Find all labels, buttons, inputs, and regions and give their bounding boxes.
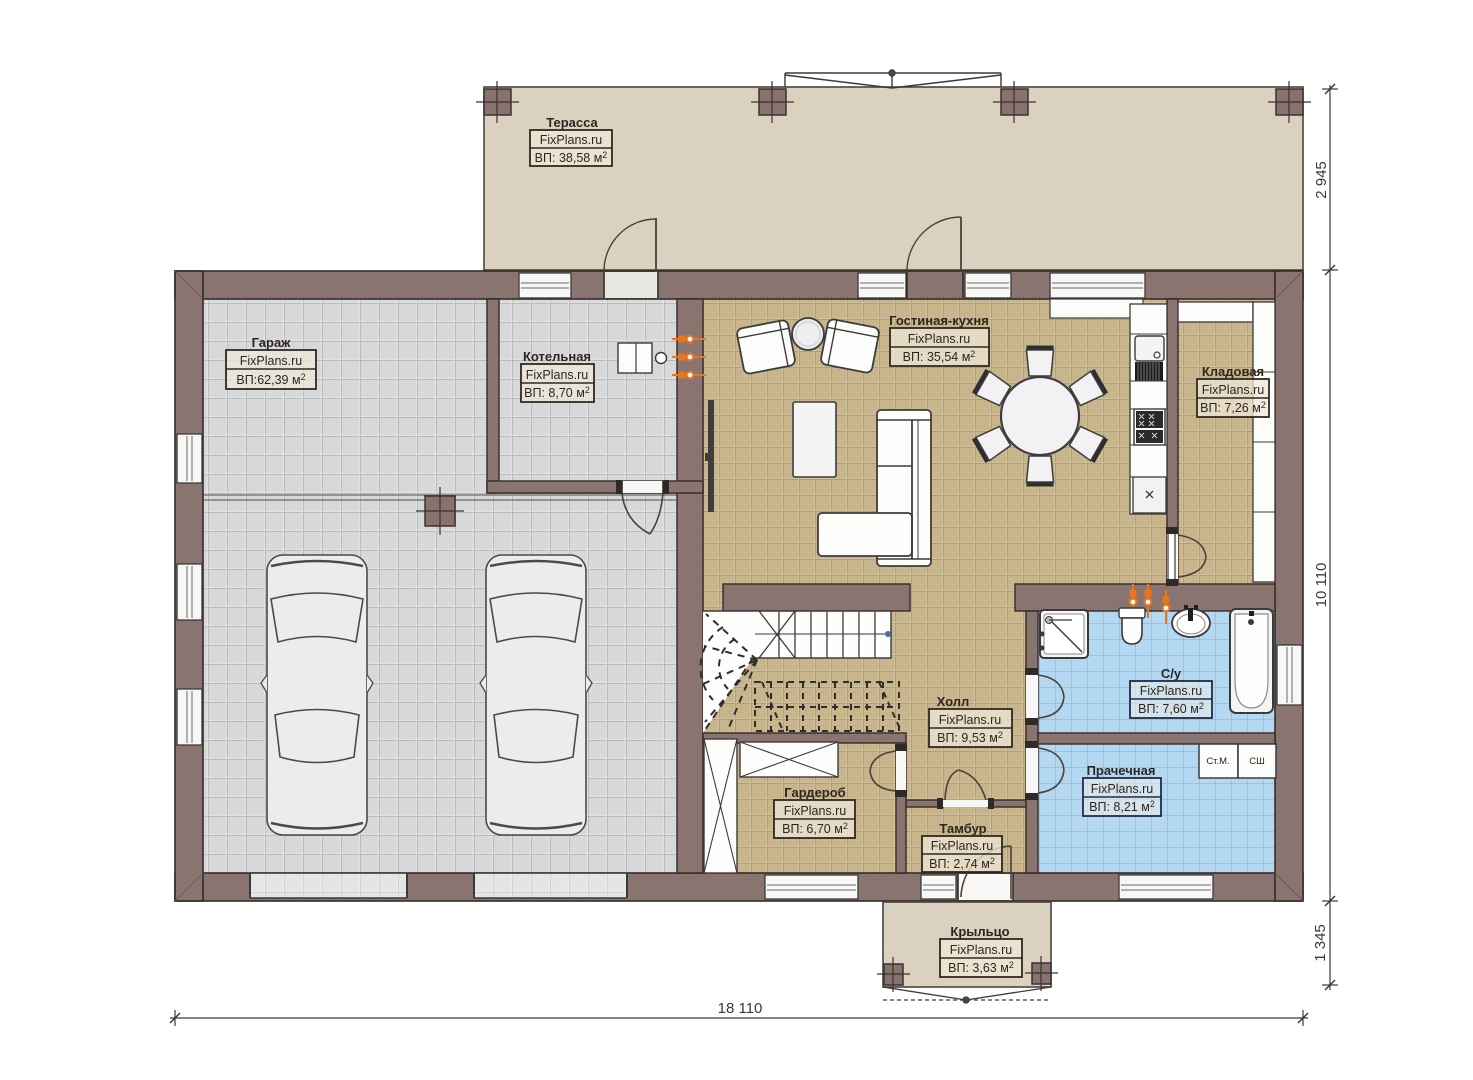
- svg-text:FixPlans.ru: FixPlans.ru: [540, 133, 603, 147]
- svg-text:Прачечная: Прачечная: [1087, 763, 1156, 778]
- svg-text:FixPlans.ru: FixPlans.ru: [526, 368, 589, 382]
- svg-text:СШ: СШ: [1249, 756, 1265, 767]
- svg-text:ВП: 3,63 м2: ВП: 3,63 м2: [948, 960, 1014, 975]
- svg-text:ВП:62,39 м2: ВП:62,39 м2: [236, 372, 305, 387]
- svg-text:Гараж: Гараж: [252, 335, 292, 350]
- svg-text:ВП: 2,74 м2: ВП: 2,74 м2: [929, 856, 995, 871]
- svg-text:FixPlans.ru: FixPlans.ru: [1202, 383, 1265, 397]
- svg-text:FixPlans.ru: FixPlans.ru: [240, 354, 303, 368]
- svg-text:FixPlans.ru: FixPlans.ru: [931, 839, 994, 853]
- svg-text:FixPlans.ru: FixPlans.ru: [908, 332, 971, 346]
- svg-text:FixPlans.ru: FixPlans.ru: [950, 943, 1013, 957]
- svg-text:1 345: 1 345: [1312, 924, 1329, 962]
- svg-text:Холл: Холл: [937, 694, 970, 709]
- svg-text:10 110: 10 110: [1313, 563, 1330, 608]
- svg-text:18 110: 18 110: [718, 1000, 763, 1017]
- svg-text:ВП: 9,53 м2: ВП: 9,53 м2: [937, 730, 1003, 745]
- svg-text:FixPlans.ru: FixPlans.ru: [784, 804, 847, 818]
- svg-text:Котельная: Котельная: [523, 349, 591, 364]
- svg-text:ВП: 35,54 м2: ВП: 35,54 м2: [903, 349, 976, 364]
- svg-text:Тамбур: Тамбур: [939, 821, 986, 836]
- svg-text:ВП: 7,26 м2: ВП: 7,26 м2: [1200, 400, 1266, 415]
- svg-text:ВП: 8,21 м2: ВП: 8,21 м2: [1089, 799, 1155, 814]
- svg-text:С/у: С/у: [1161, 666, 1182, 681]
- svg-text:FixPlans.ru: FixPlans.ru: [1140, 684, 1203, 698]
- svg-text:Кладовая: Кладовая: [1202, 364, 1264, 379]
- svg-text:Ст.М.: Ст.М.: [1206, 756, 1229, 767]
- svg-text:ВП: 6,70 м2: ВП: 6,70 м2: [782, 821, 848, 836]
- svg-text:ВП: 38,58 м2: ВП: 38,58 м2: [535, 150, 608, 165]
- svg-text:Гостиная-кухня: Гостиная-кухня: [889, 313, 989, 328]
- svg-text:FixPlans.ru: FixPlans.ru: [1091, 782, 1154, 796]
- svg-text:Гардероб: Гардероб: [784, 785, 845, 800]
- svg-text:Крыльцо: Крыльцо: [950, 924, 1009, 939]
- svg-text:ВП: 8,70 м2: ВП: 8,70 м2: [524, 385, 590, 400]
- svg-text:Терасса: Терасса: [546, 115, 598, 130]
- svg-text:2 945: 2 945: [1313, 161, 1330, 199]
- svg-text:FixPlans.ru: FixPlans.ru: [939, 713, 1002, 727]
- svg-text:ВП: 7,60 м2: ВП: 7,60 м2: [1138, 701, 1204, 716]
